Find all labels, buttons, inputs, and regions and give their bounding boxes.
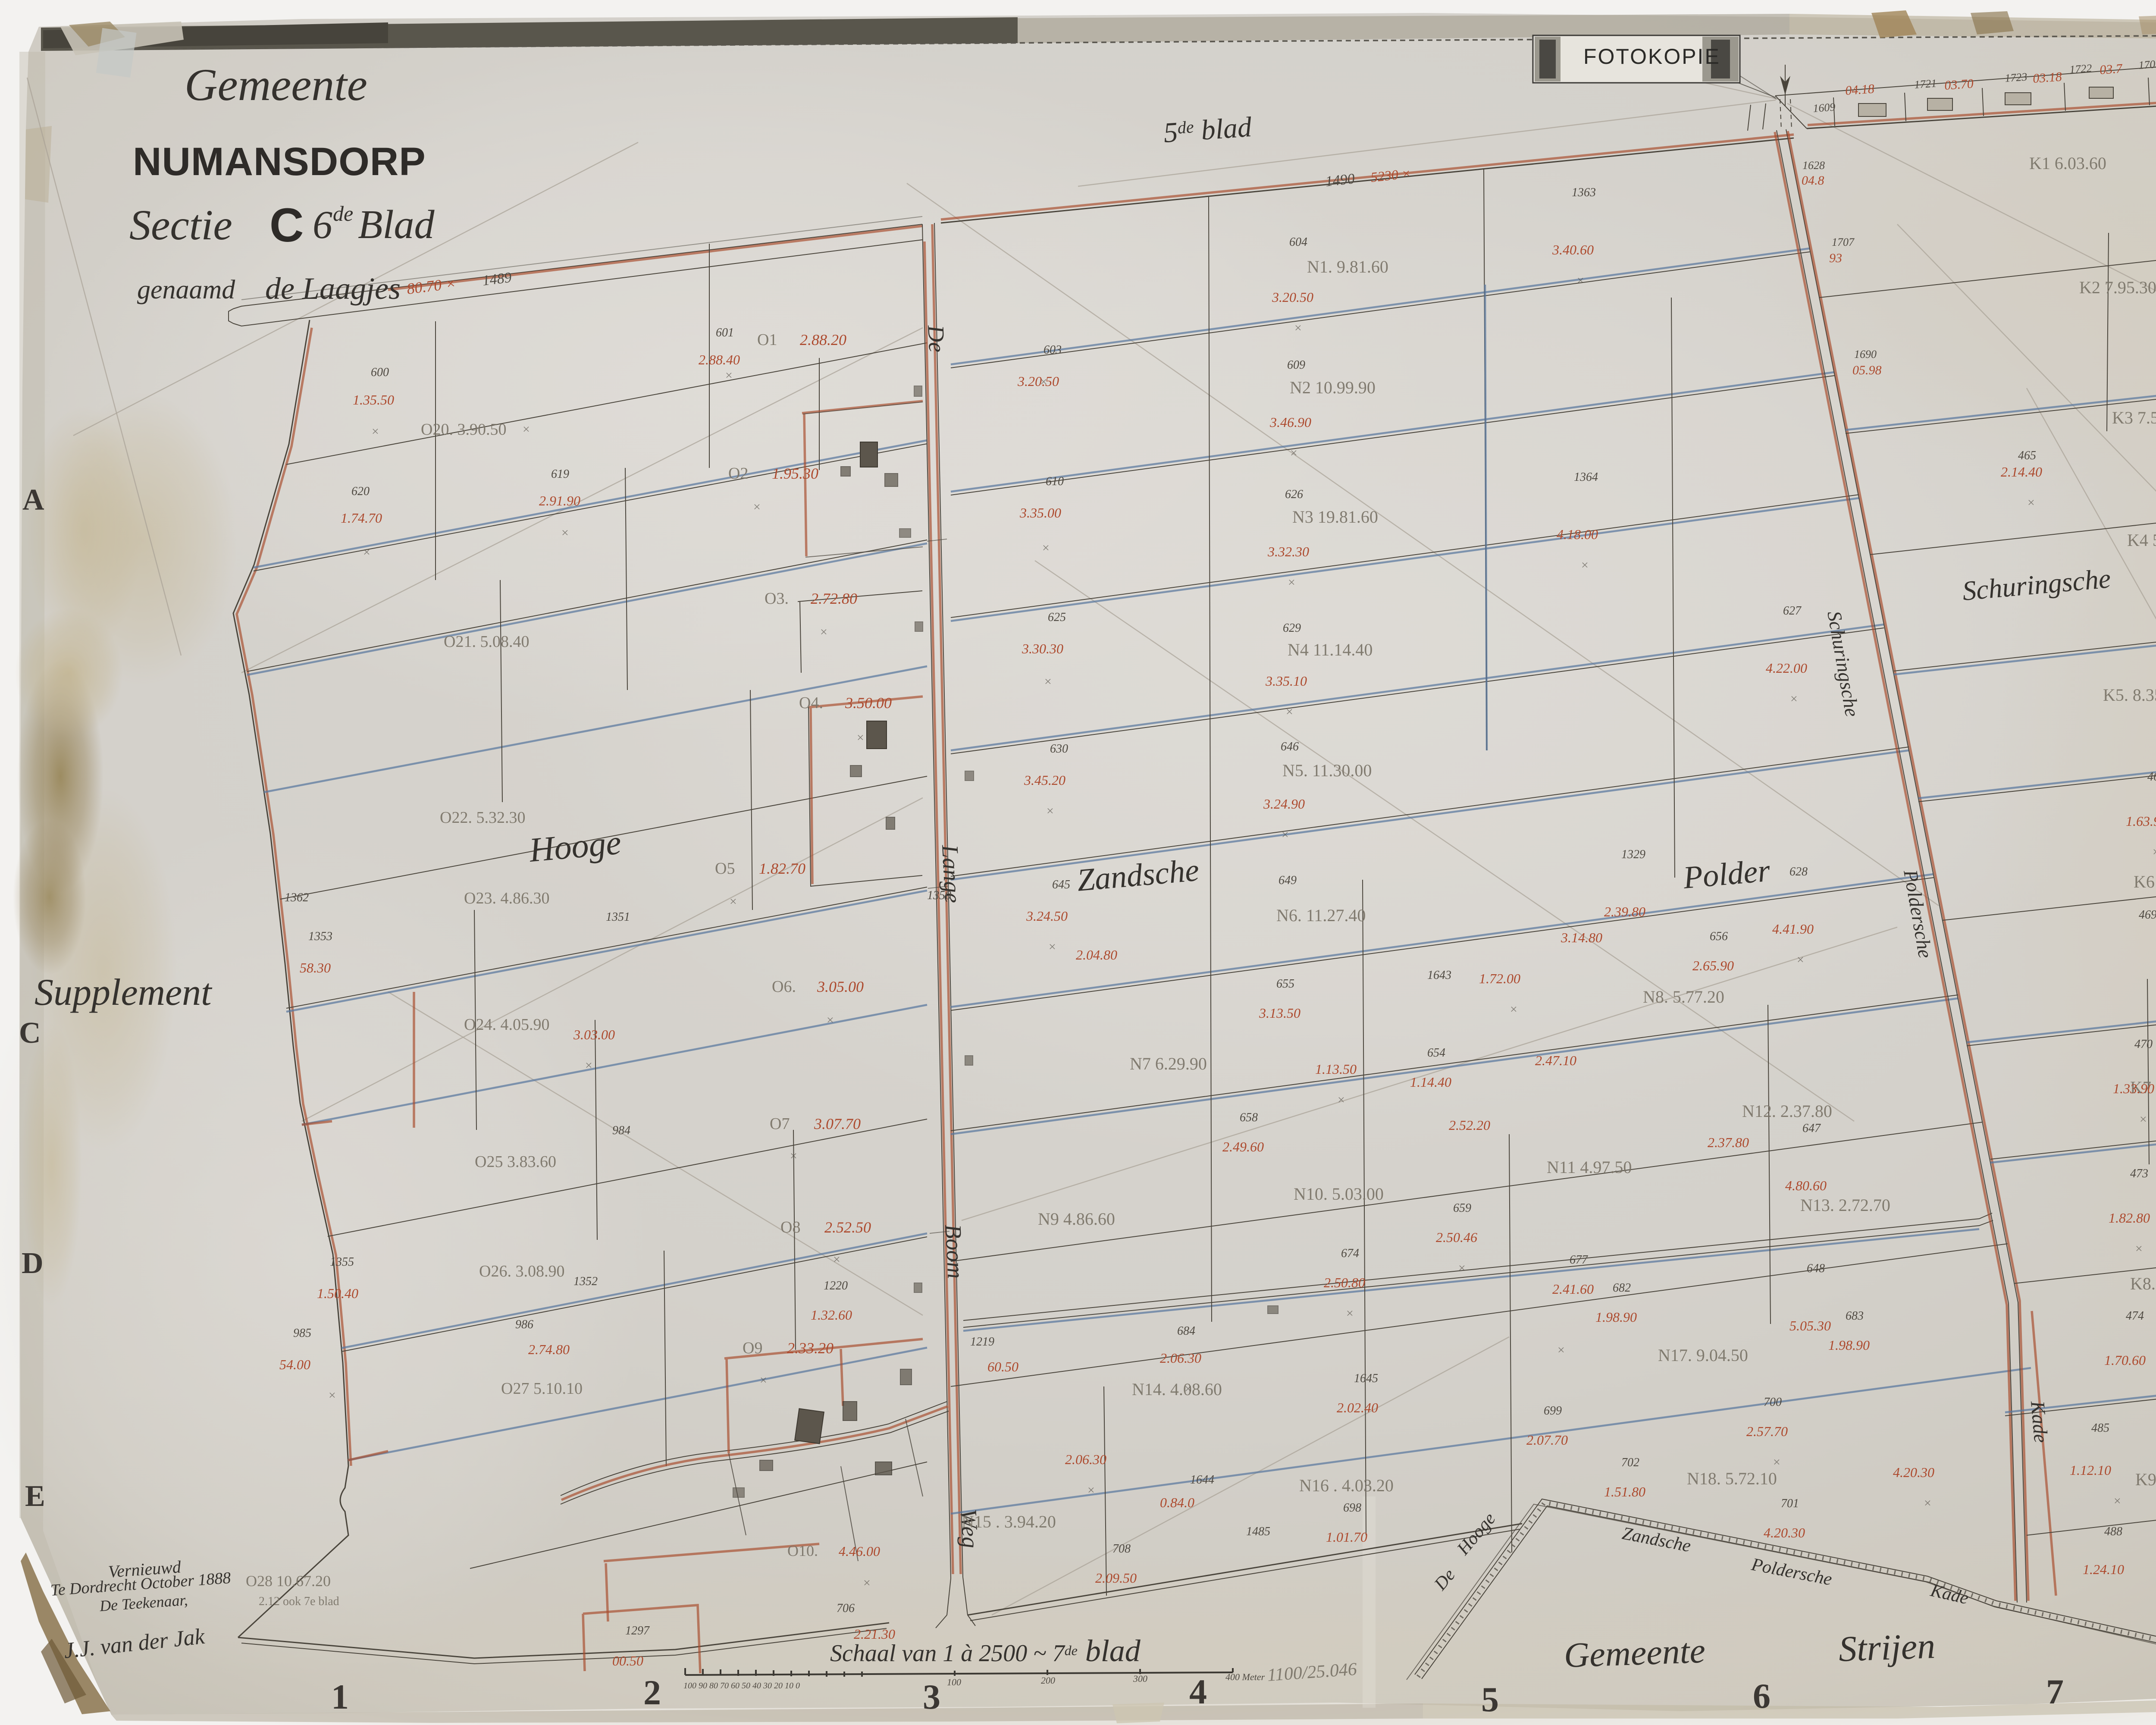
svg-text:1329: 1329 [1621, 848, 1645, 861]
svg-text:2.12 ook 7e blad: 2.12 ook 7e blad [259, 1595, 339, 1608]
svg-text:985: 985 [293, 1327, 311, 1340]
svg-text:469: 469 [2139, 908, 2156, 922]
svg-text:de Laagjes: de Laagjes [265, 271, 401, 306]
svg-text:60.50: 60.50 [987, 1359, 1018, 1374]
svg-text:genaamd: genaamd [137, 275, 235, 304]
svg-text:3.03.00: 3.03.00 [573, 1027, 615, 1042]
svg-text:3.20.50: 3.20.50 [1272, 289, 1313, 305]
svg-text:2.39.80: 2.39.80 [1604, 904, 1645, 919]
svg-text:609: 609 [1287, 358, 1305, 372]
svg-text:×: × [1509, 1002, 1518, 1016]
svg-text:N9 4.86.60: N9 4.86.60 [1038, 1209, 1115, 1229]
svg-text:4.22.00: 4.22.00 [1766, 660, 1807, 676]
svg-text:5de blad: 5de blad [1163, 111, 1253, 149]
svg-text:659: 659 [1453, 1201, 1471, 1215]
svg-text:De: De [923, 324, 950, 353]
svg-text:×: × [328, 1388, 336, 1402]
svg-text:3.46.90: 3.46.90 [1269, 414, 1311, 430]
svg-text:100: 100 [947, 1677, 961, 1687]
svg-text:4.80.60: 4.80.60 [1785, 1178, 1827, 1193]
svg-text:×: × [1576, 273, 1585, 288]
svg-text:N14. 4.08.60: N14. 4.08.60 [1132, 1380, 1222, 1399]
svg-text:O2: O2 [728, 464, 748, 483]
svg-text:O8: O8 [780, 1218, 800, 1236]
svg-text:×: × [819, 625, 828, 639]
svg-text:2.57.70: 2.57.70 [1746, 1424, 1788, 1439]
svg-text:K8. 4.85.00: K8. 4.85.00 [2130, 1274, 2156, 1293]
svg-text:702: 702 [1621, 1456, 1639, 1469]
svg-text:4.46.00: 4.46.00 [839, 1543, 880, 1559]
svg-text:1352: 1352 [573, 1275, 598, 1288]
svg-text:1219: 1219 [970, 1335, 994, 1349]
svg-text:2.91.90: 2.91.90 [539, 493, 580, 508]
svg-text:3.05.00: 3.05.00 [817, 978, 864, 995]
svg-text:2.14.40: 2.14.40 [2001, 464, 2042, 480]
svg-text:N13. 2.72.70: N13. 2.72.70 [1800, 1195, 1890, 1215]
svg-text:×: × [584, 1058, 593, 1073]
svg-text:1705: 1705 [2138, 57, 2156, 72]
svg-text:×: × [826, 1013, 834, 1027]
svg-text:O27 5.10.10: O27 5.10.10 [501, 1380, 583, 1398]
svg-text:1353: 1353 [308, 930, 332, 943]
svg-text:1490: 1490 [1325, 171, 1355, 190]
svg-text:×: × [1345, 1306, 1354, 1320]
svg-text:1362: 1362 [285, 891, 309, 904]
svg-text:N3 19.81.60: N3 19.81.60 [1292, 507, 1378, 527]
svg-text:×: × [1048, 940, 1056, 954]
svg-text:3.32.30: 3.32.30 [1267, 544, 1309, 559]
svg-text:×: × [729, 894, 737, 909]
svg-text:O3.: O3. [765, 590, 789, 608]
svg-text:1.98.90: 1.98.90 [1828, 1337, 1870, 1353]
svg-text:O26. 3.08.90: O26. 3.08.90 [479, 1262, 564, 1280]
svg-text:645: 645 [1052, 878, 1070, 891]
svg-text:300: 300 [1133, 1673, 1147, 1684]
svg-text:Gemeente: Gemeente [185, 60, 367, 110]
svg-text:4: 4 [1189, 1672, 1207, 1711]
svg-text:de: de [333, 201, 353, 226]
svg-text:54.00: 54.00 [279, 1357, 310, 1372]
svg-text:×: × [362, 545, 371, 559]
svg-text:Blad: Blad [358, 202, 435, 247]
svg-text:1721: 1721 [1914, 77, 1937, 91]
svg-text:1.32.60: 1.32.60 [811, 1307, 852, 1323]
svg-text:1628: 1628 [1802, 159, 1825, 172]
svg-text:6: 6 [1753, 1676, 1771, 1716]
svg-text:3.45.20: 3.45.20 [1024, 772, 1065, 788]
svg-text:684: 684 [1177, 1324, 1195, 1338]
svg-text:K4 5.91.50: K4 5.91.50 [2127, 530, 2156, 550]
svg-text:×: × [2134, 1242, 2143, 1256]
svg-text:×: × [1457, 1261, 1466, 1275]
svg-text:465: 465 [2018, 449, 2036, 462]
svg-text:×: × [856, 731, 865, 745]
svg-text:647: 647 [1802, 1122, 1821, 1135]
svg-text:1351: 1351 [606, 910, 630, 924]
svg-text:1.13.50: 1.13.50 [1315, 1061, 1357, 1077]
svg-text:O6.: O6. [772, 978, 796, 996]
svg-text:2.72.80: 2.72.80 [811, 590, 857, 607]
svg-text:×: × [1285, 705, 1294, 719]
svg-text:×: × [1789, 692, 1798, 706]
svg-text:700: 700 [1764, 1396, 1782, 1409]
svg-text:3.13.50: 3.13.50 [1259, 1005, 1300, 1021]
svg-text:1.12.10: 1.12.10 [2070, 1462, 2111, 1478]
svg-text:×: × [789, 1149, 798, 1163]
svg-text:984: 984 [612, 1124, 630, 1137]
svg-text:O22. 5.32.30: O22. 5.32.30 [440, 809, 525, 827]
svg-text:1.82.80: 1.82.80 [2109, 1210, 2150, 1226]
svg-text:N7 6.29.90: N7 6.29.90 [1130, 1054, 1207, 1073]
svg-text:×: × [752, 500, 761, 514]
svg-text:2.50.80: 2.50.80 [1324, 1275, 1365, 1290]
svg-text:00.50: 00.50 [612, 1653, 643, 1669]
svg-text:2.88.20: 2.88.20 [800, 331, 846, 348]
svg-text:1.35.50: 1.35.50 [353, 392, 394, 408]
svg-text:O24. 4.05.90: O24. 4.05.90 [464, 1016, 549, 1034]
svg-text:×: × [1337, 1093, 1345, 1107]
svg-text:699: 699 [1544, 1404, 1562, 1418]
svg-text:1645: 1645 [1354, 1372, 1378, 1385]
svg-text:05.98: 05.98 [1852, 363, 1882, 377]
svg-text:58.30: 58.30 [300, 960, 331, 975]
svg-text:1644: 1644 [1190, 1473, 1214, 1487]
svg-text:601: 601 [716, 326, 734, 339]
svg-text:100 90 80 70 60 50 40 30 20 10: 100 90 80 70 60 50 40 30 20 10 0 [683, 1681, 800, 1690]
svg-text:0.84.0: 0.84.0 [1160, 1495, 1194, 1510]
svg-text:Supplement: Supplement [34, 972, 213, 1013]
svg-text:N2 10.99.90: N2 10.99.90 [1290, 378, 1376, 397]
svg-text:1364: 1364 [1574, 470, 1598, 484]
svg-text:2.47.10: 2.47.10 [1535, 1053, 1576, 1068]
svg-text:677: 677 [1570, 1253, 1588, 1267]
svg-text:04.18: 04.18 [1845, 82, 1875, 98]
svg-text:1722: 1722 [2069, 62, 2092, 76]
svg-text:×: × [1772, 1455, 1781, 1469]
svg-text:O21. 5.08.40: O21. 5.08.40 [444, 633, 529, 651]
svg-text:N8. 5.77.20: N8. 5.77.20 [1643, 987, 1724, 1007]
svg-text:3.50.00: 3.50.00 [845, 694, 892, 712]
svg-text:1.33.90: 1.33.90 [2113, 1081, 2154, 1096]
svg-text:×: × [1046, 804, 1054, 818]
svg-text:N17. 9.04.50: N17. 9.04.50 [1658, 1345, 1748, 1365]
svg-text:683: 683 [1846, 1309, 1864, 1323]
svg-text:×: × [1557, 1343, 1565, 1357]
svg-text:K3 7.53.80: K3 7.53.80 [2112, 408, 2156, 427]
svg-text:04.8: 04.8 [1802, 173, 1824, 188]
svg-text:986: 986 [515, 1318, 533, 1331]
svg-text:93: 93 [1829, 251, 1842, 265]
svg-text:627: 627 [1783, 604, 1802, 618]
svg-text:1.01.70: 1.01.70 [1326, 1529, 1367, 1545]
svg-text:2.04.80: 2.04.80 [1076, 947, 1117, 963]
svg-text:1.70.60: 1.70.60 [2104, 1352, 2146, 1368]
svg-text:7: 7 [2046, 1672, 2064, 1711]
svg-text:2.52.20: 2.52.20 [1449, 1117, 1490, 1133]
svg-text:5: 5 [1481, 1680, 1499, 1719]
svg-text:×: × [862, 1576, 871, 1590]
svg-text:2.52.50: 2.52.50 [824, 1219, 871, 1236]
svg-text:Gemeente: Gemeente [1563, 1631, 1706, 1675]
svg-text:620: 620 [351, 485, 370, 498]
svg-text:2.06.30: 2.06.30 [1065, 1452, 1106, 1467]
svg-text:E: E [25, 1480, 45, 1513]
svg-text:N11 4.97.50: N11 4.97.50 [1547, 1157, 1632, 1177]
svg-text:K5. 8.35.60: K5. 8.35.60 [2103, 685, 2156, 705]
svg-text:×: × [1580, 558, 1589, 572]
svg-text:1707: 1707 [1832, 236, 1855, 248]
svg-text:03.18: 03.18 [2032, 69, 2062, 86]
svg-text:Boom: Boom [940, 1223, 969, 1279]
svg-text:2.74.80: 2.74.80 [528, 1342, 570, 1357]
svg-text:2.88.40: 2.88.40 [699, 352, 740, 367]
svg-text:3.24.50: 3.24.50 [1026, 908, 1068, 924]
svg-text:FOTOKOPIE: FOTOKOPIE [1583, 44, 1720, 69]
svg-text:×: × [1287, 575, 1296, 590]
svg-text:N6. 11.27.40: N6. 11.27.40 [1276, 906, 1366, 925]
svg-text:×: × [832, 1252, 841, 1267]
svg-text:3.14.80: 3.14.80 [1561, 930, 1602, 945]
svg-text:O23. 4.86.30: O23. 4.86.30 [464, 889, 549, 907]
svg-text:2.41.60: 2.41.60 [1552, 1281, 1594, 1297]
svg-text:×: × [724, 368, 733, 383]
svg-text:656: 656 [1710, 930, 1728, 943]
svg-text:2.37.80: 2.37.80 [1708, 1135, 1749, 1150]
svg-text:1643: 1643 [1427, 969, 1451, 982]
svg-text:O10.: O10. [787, 1542, 818, 1559]
svg-text:N5. 11.30.00: N5. 11.30.00 [1282, 761, 1372, 780]
svg-text:1.14.40: 1.14.40 [1410, 1074, 1451, 1090]
svg-text:Strijen: Strijen [1838, 1626, 1936, 1669]
svg-text:3.35.10: 3.35.10 [1265, 673, 1307, 689]
svg-text:200: 200 [1041, 1675, 1055, 1686]
svg-text:K2 7.95.30: K2 7.95.30 [2079, 278, 2156, 297]
svg-text:1.24.10: 1.24.10 [2083, 1562, 2124, 1577]
svg-text:2.07.70: 2.07.70 [1526, 1432, 1568, 1448]
svg-text:N1. 9.81.60: N1. 9.81.60 [1307, 257, 1388, 276]
svg-text:1.63.90: 1.63.90 [2126, 813, 2156, 829]
svg-text:O28 10.67.20: O28 10.67.20 [246, 1572, 331, 1590]
svg-text:4.18.00: 4.18.00 [1557, 527, 1598, 542]
svg-text:×: × [1041, 541, 1050, 555]
svg-text:3.24.90: 3.24.90 [1263, 796, 1305, 812]
svg-text:1.51.80: 1.51.80 [1604, 1484, 1645, 1499]
svg-text:×: × [2139, 1112, 2147, 1126]
svg-text:2.21.30: 2.21.30 [854, 1626, 895, 1642]
svg-text:N15 . 3.94.20: N15 . 3.94.20 [962, 1512, 1056, 1531]
svg-text:1355: 1355 [330, 1255, 354, 1269]
svg-text:N16 . 4.03.20: N16 . 4.03.20 [1299, 1476, 1394, 1495]
svg-text:648: 648 [1807, 1262, 1825, 1275]
svg-text:3.07.70: 3.07.70 [814, 1115, 861, 1132]
svg-text:O4.: O4. [799, 694, 823, 712]
svg-text:×: × [1796, 953, 1805, 967]
svg-text:O5: O5 [715, 859, 735, 878]
svg-text:O9: O9 [743, 1339, 762, 1357]
svg-text:474: 474 [2126, 1309, 2144, 1323]
svg-text:1297: 1297 [625, 1624, 650, 1637]
svg-text:488: 488 [2104, 1525, 2122, 1538]
svg-text:4.20.30: 4.20.30 [1764, 1525, 1805, 1540]
svg-text:N4 11.14.40: N4 11.14.40 [1288, 640, 1373, 659]
svg-text:N18. 5.72.10: N18. 5.72.10 [1687, 1469, 1777, 1488]
svg-text:×: × [1281, 828, 1289, 842]
svg-text:2.06.30: 2.06.30 [1160, 1350, 1201, 1366]
svg-text:708: 708 [1112, 1542, 1131, 1556]
svg-text:1.95.30: 1.95.30 [772, 465, 818, 482]
svg-text:625: 625 [1048, 611, 1066, 624]
svg-text:2.09.50: 2.09.50 [1095, 1570, 1137, 1586]
svg-text:×: × [371, 424, 379, 439]
svg-text:682: 682 [1613, 1281, 1631, 1295]
svg-text:658: 658 [1240, 1111, 1258, 1124]
svg-text:×: × [1039, 375, 1048, 389]
svg-text:3.20.50: 3.20.50 [1017, 373, 1059, 389]
svg-text:1723: 1723 [2004, 70, 2028, 85]
svg-text:1363: 1363 [1572, 186, 1596, 199]
svg-text:2.50.46: 2.50.46 [1436, 1229, 1477, 1245]
svg-text:3.40.60: 3.40.60 [1552, 242, 1594, 257]
svg-text:655: 655 [1276, 977, 1294, 991]
svg-text:2.65.90: 2.65.90 [1692, 958, 1734, 973]
svg-text:698: 698 [1343, 1501, 1361, 1515]
svg-text:4.20.30: 4.20.30 [1893, 1465, 1934, 1480]
svg-text:629: 629 [1283, 621, 1301, 635]
svg-text:×: × [759, 1373, 768, 1387]
svg-text:×: × [1087, 1483, 1095, 1497]
svg-text:2.49.60: 2.49.60 [1222, 1139, 1264, 1154]
svg-text:O1: O1 [757, 331, 777, 349]
svg-text:C: C [269, 199, 304, 252]
svg-text:N10. 5.03.00: N10. 5.03.00 [1294, 1184, 1384, 1204]
svg-text:3.35.00: 3.35.00 [1019, 505, 1061, 521]
svg-text:630: 630 [1050, 742, 1068, 756]
svg-text:3: 3 [923, 1677, 940, 1716]
svg-text:466: 466 [2147, 770, 2156, 784]
svg-text:03.70: 03.70 [1944, 76, 1974, 93]
svg-text:1.50.40: 1.50.40 [317, 1286, 358, 1301]
svg-text:×: × [1294, 321, 1302, 335]
svg-text:N12. 2.37.80: N12. 2.37.80 [1742, 1101, 1832, 1121]
svg-text:×: × [1044, 674, 1052, 689]
svg-text:×: × [522, 422, 530, 436]
svg-text:4.41.90: 4.41.90 [1772, 921, 1814, 937]
svg-text:706: 706 [837, 1602, 855, 1615]
svg-text:NUMANSDORP: NUMANSDORP [133, 140, 426, 184]
svg-text:O20. 3.90.50: O20. 3.90.50 [421, 420, 506, 439]
svg-text:400 Meter: 400 Meter [1225, 1672, 1265, 1682]
svg-text:473: 473 [2130, 1167, 2148, 1180]
svg-text:626: 626 [1285, 488, 1303, 501]
svg-text:03.7: 03.7 [2099, 61, 2124, 77]
svg-text:485: 485 [2091, 1421, 2109, 1435]
svg-text:610: 610 [1046, 475, 1064, 488]
svg-text:1.72.00: 1.72.00 [1479, 971, 1520, 986]
svg-text:1220: 1220 [824, 1279, 848, 1292]
svg-text:C: C [19, 1016, 41, 1050]
svg-text:Sectie: Sectie [129, 201, 232, 249]
svg-text:1350: 1350 [927, 889, 951, 902]
svg-text:1.98.90: 1.98.90 [1595, 1309, 1637, 1325]
svg-text:1485: 1485 [1246, 1525, 1270, 1538]
svg-text:701: 701 [1781, 1497, 1799, 1510]
svg-text:A: A [22, 483, 44, 517]
svg-text:×: × [1289, 446, 1298, 460]
svg-text:2: 2 [643, 1673, 661, 1712]
svg-text:5.05.30: 5.05.30 [1789, 1318, 1831, 1333]
svg-text:603: 603 [1044, 343, 1062, 357]
svg-text:1.82.70: 1.82.70 [759, 860, 805, 877]
svg-text:2.33.20: 2.33.20 [787, 1339, 834, 1357]
svg-text:×: × [2027, 496, 2035, 510]
svg-text:1690: 1690 [1854, 348, 1877, 361]
svg-text:×: × [561, 526, 569, 540]
svg-text:646: 646 [1281, 740, 1299, 753]
svg-text:6: 6 [313, 203, 332, 247]
svg-text:D: D [22, 1247, 44, 1280]
svg-text:619: 619 [551, 467, 569, 481]
svg-text:604: 604 [1289, 235, 1307, 249]
svg-text:K9. 5.12.50: K9. 5.12.50 [2135, 1470, 2156, 1489]
svg-text:470: 470 [2134, 1038, 2153, 1051]
svg-text:1: 1 [331, 1677, 349, 1716]
svg-text:1609: 1609 [1812, 100, 1836, 115]
svg-text:674: 674 [1341, 1247, 1359, 1260]
svg-text:654: 654 [1427, 1046, 1445, 1060]
svg-text:2.02.40: 2.02.40 [1337, 1400, 1378, 1415]
svg-text:×: × [2113, 1494, 2122, 1508]
svg-text:O25 3.83.60: O25 3.83.60 [475, 1153, 556, 1171]
svg-text:K1 6.03.60: K1 6.03.60 [2029, 154, 2106, 173]
svg-text:Kade: Kade [2027, 1399, 2052, 1443]
svg-text:628: 628 [1789, 865, 1808, 878]
svg-text:×: × [2152, 845, 2156, 859]
svg-text:3.30.30: 3.30.30 [1022, 641, 1063, 656]
svg-text:×: × [1923, 1496, 1932, 1510]
svg-text:600: 600 [371, 366, 389, 379]
svg-text:K6 7.43.00: K6 7.43.00 [2134, 872, 2156, 891]
svg-text:1.74.70: 1.74.70 [341, 510, 382, 526]
svg-text:Hooge: Hooge [527, 824, 623, 869]
svg-text:649: 649 [1279, 874, 1297, 887]
svg-text:O7: O7 [770, 1115, 790, 1133]
svg-text:×: × [1184, 1382, 1192, 1396]
